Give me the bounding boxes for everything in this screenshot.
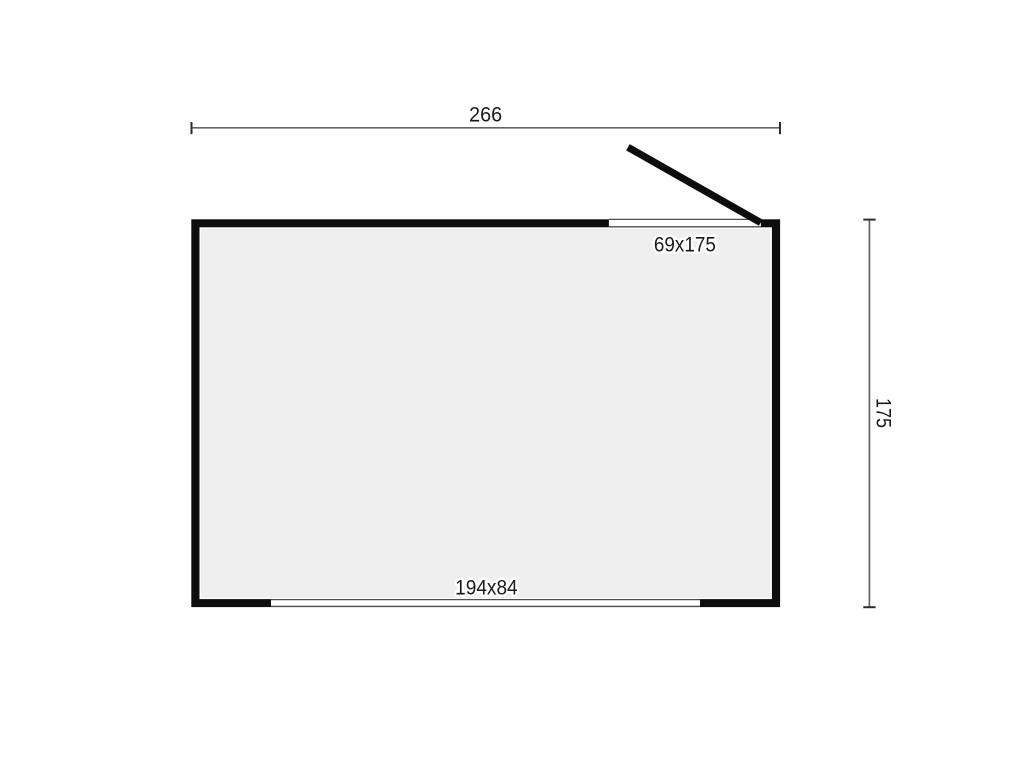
svg-text:194x84: 194x84 (455, 576, 518, 599)
svg-text:69x175: 69x175 (654, 233, 716, 256)
svg-text:266: 266 (469, 104, 502, 127)
svg-text:175: 175 (871, 398, 894, 428)
